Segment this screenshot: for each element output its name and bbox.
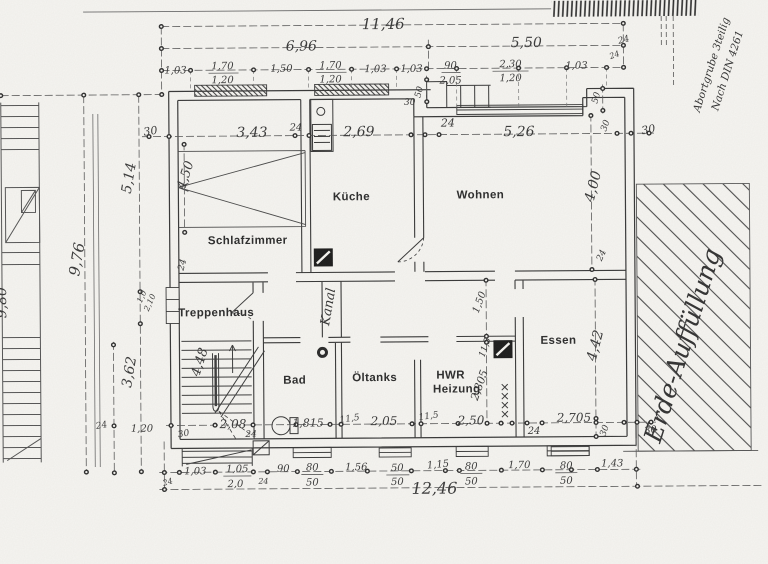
scan-noise-overlay [0, 0, 768, 564]
floor-plan-drawing: 11,46 6,96 5,50 24 1,03 1,70 1,20 1,50 1… [0, 0, 768, 564]
scanned-floor-plan-page: 11,46 6,96 5,50 24 1,03 1,70 1,20 1,50 1… [0, 0, 768, 564]
